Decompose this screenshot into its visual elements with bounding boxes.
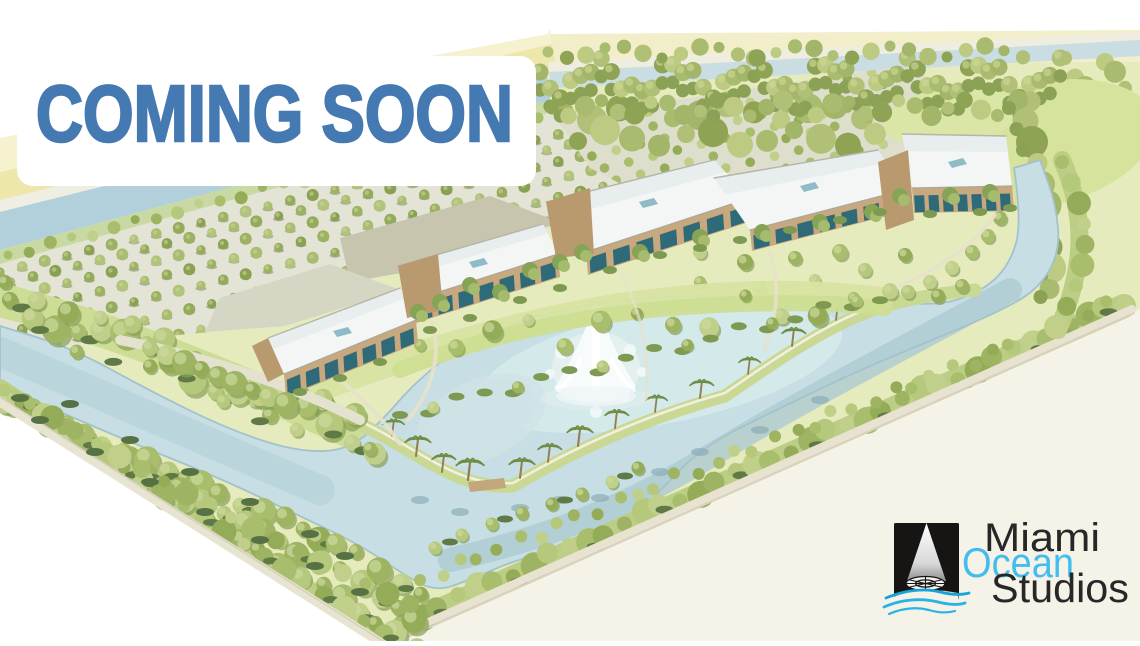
svg-text:COMING SOON: COMING SOON (36, 69, 513, 158)
svg-text:Studios: Studios (991, 565, 1129, 611)
